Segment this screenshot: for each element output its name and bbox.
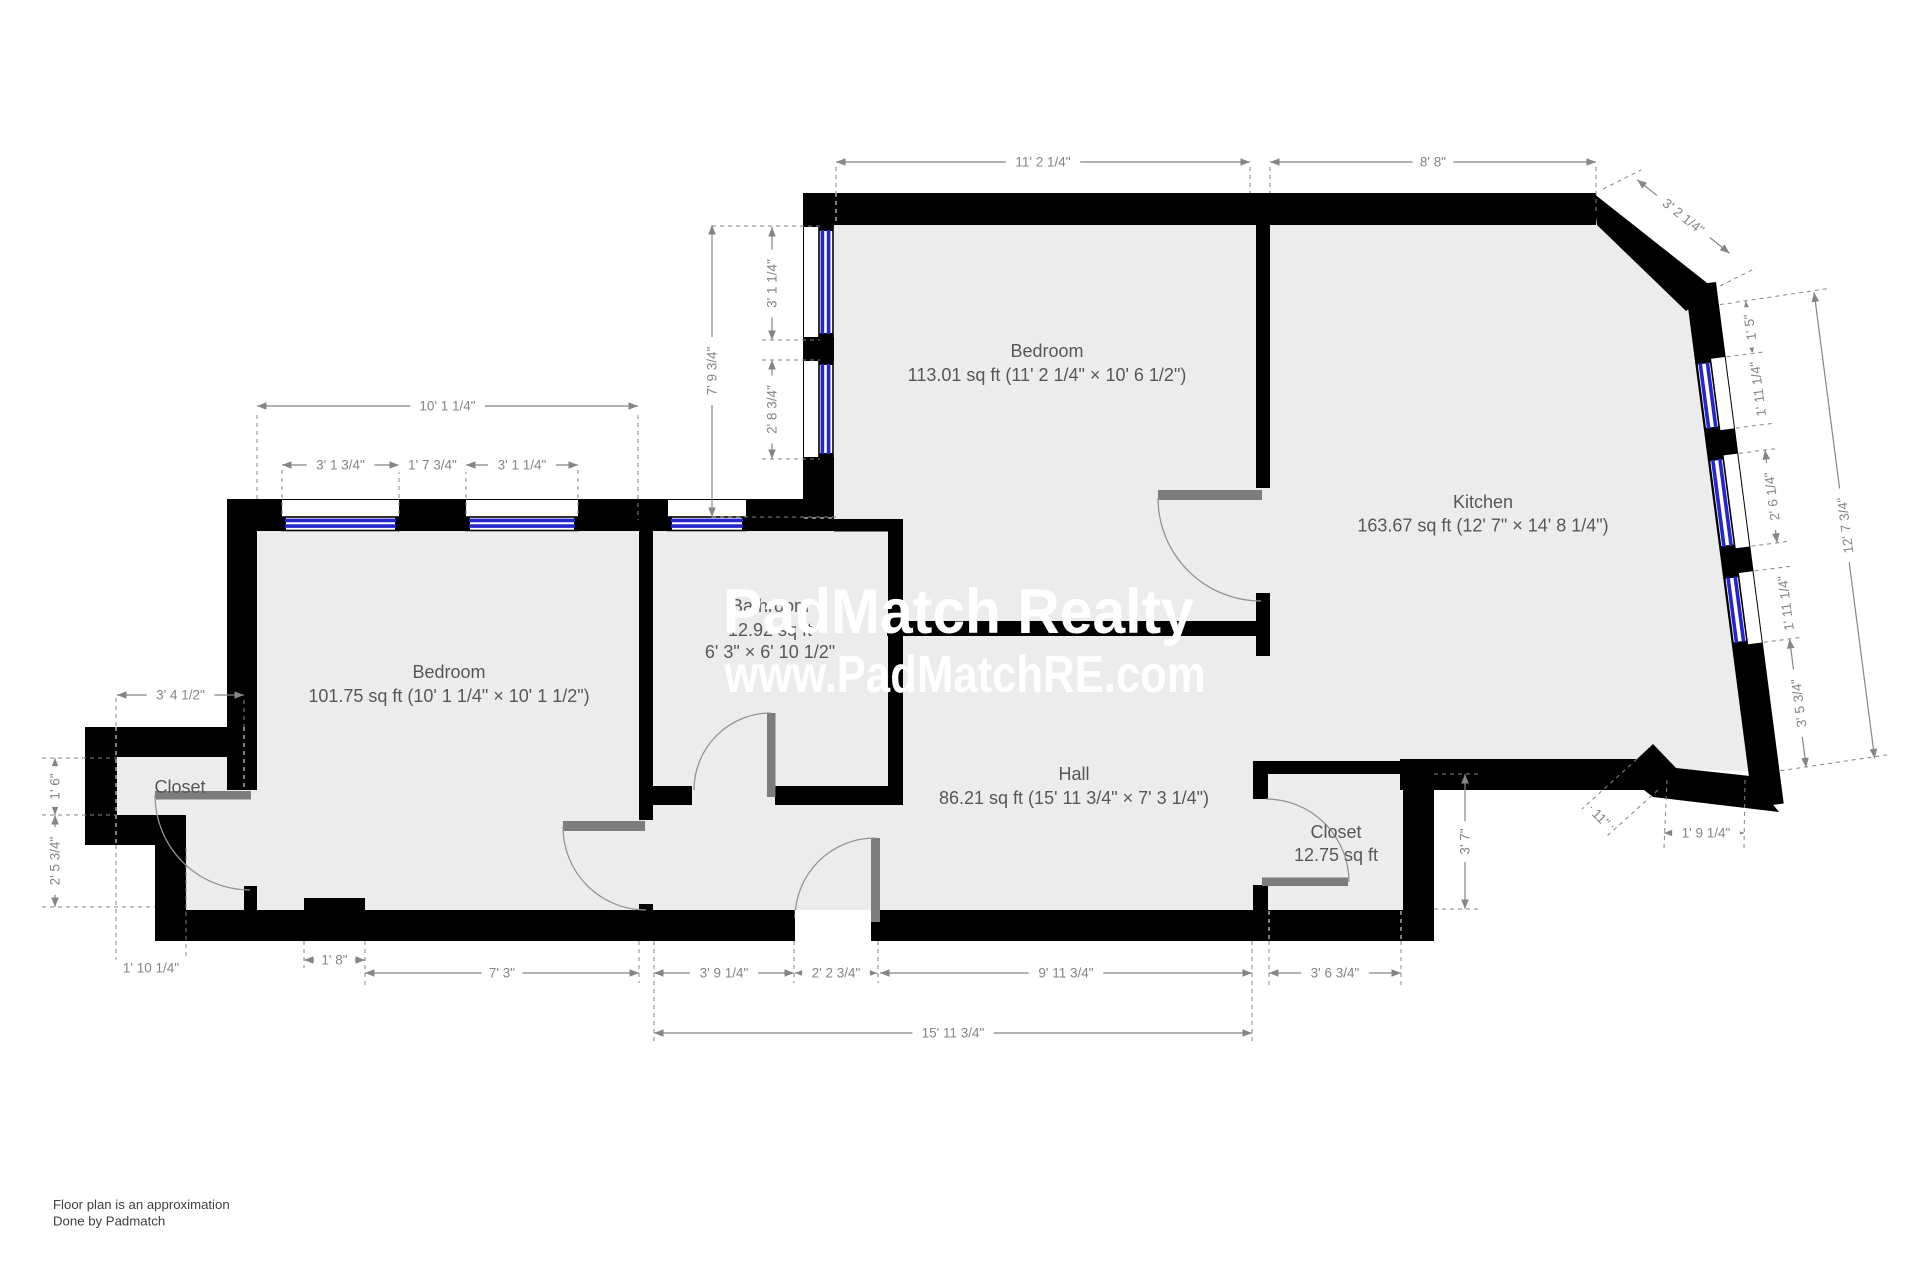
svg-text:3' 4 1/2": 3' 4 1/2": [156, 687, 205, 702]
svg-text:7' 9 3/4": 7' 9 3/4": [704, 346, 719, 395]
svg-text:101.75 sq ft (10' 1 1/4" × 10': 101.75 sq ft (10' 1 1/4" × 10' 1 1/2"): [308, 686, 589, 706]
svg-text:3' 9 1/4": 3' 9 1/4": [700, 965, 749, 980]
svg-text:www.PadMatchRE.com: www.PadMatchRE.com: [723, 647, 1205, 704]
svg-text:10' 1 1/4": 10' 1 1/4": [419, 398, 475, 413]
svg-text:8' 8": 8' 8": [1420, 154, 1446, 169]
svg-text:86.21 sq ft (15' 11 3/4" × 7': 86.21 sq ft (15' 11 3/4" × 7' 3 1/4"): [939, 788, 1209, 808]
svg-text:Done by Padmatch: Done by Padmatch: [53, 1214, 165, 1229]
svg-text:15' 11 3/4": 15' 11 3/4": [922, 1025, 985, 1040]
svg-text:163.67 sq ft (12' 7" × 14' 8 1: 163.67 sq ft (12' 7" × 14' 8 1/4"): [1357, 516, 1608, 536]
svg-text:1' 7 3/4": 1' 7 3/4": [408, 457, 457, 472]
svg-text:Hall: Hall: [1058, 764, 1089, 784]
svg-text:11' 2 1/4": 11' 2 1/4": [1015, 154, 1070, 169]
svg-text:Bedroom: Bedroom: [412, 662, 485, 682]
svg-text:3' 1 1/4": 3' 1 1/4": [764, 259, 779, 308]
svg-text:1' 6": 1' 6": [47, 773, 62, 799]
svg-text:Closet: Closet: [1310, 822, 1361, 842]
svg-text:Floor plan is an approximation: Floor plan is an approximation: [53, 1197, 230, 1212]
svg-text:2' 8 3/4": 2' 8 3/4": [764, 385, 779, 434]
svg-text:12.75 sq ft: 12.75 sq ft: [1294, 845, 1378, 865]
svg-text:113.01 sq ft (11' 2 1/4" × 10': 113.01 sq ft (11' 2 1/4" × 10' 6 1/2"): [908, 365, 1187, 385]
svg-text:PadMatch Realty: PadMatch Realty: [723, 576, 1194, 646]
svg-text:1' 10 1/4": 1' 10 1/4": [123, 960, 179, 975]
svg-text:1' 9 1/4": 1' 9 1/4": [1682, 825, 1731, 840]
svg-text:3' 1 3/4": 3' 1 3/4": [316, 457, 365, 472]
svg-text:Kitchen: Kitchen: [1453, 492, 1513, 512]
svg-text:2' 2 3/4": 2' 2 3/4": [812, 965, 861, 980]
svg-text:3' 7": 3' 7": [1457, 828, 1472, 854]
svg-text:3' 6 3/4": 3' 6 3/4": [1311, 965, 1360, 980]
svg-text:Closet: Closet: [154, 777, 205, 797]
svg-text:9' 11 3/4": 9' 11 3/4": [1038, 965, 1093, 980]
svg-text:Bedroom: Bedroom: [1010, 341, 1083, 361]
svg-text:7' 3": 7' 3": [489, 965, 515, 980]
svg-text:2' 5 3/4": 2' 5 3/4": [47, 836, 62, 885]
svg-text:3' 1 1/4": 3' 1 1/4": [498, 457, 547, 472]
svg-text:1' 8": 1' 8": [321, 952, 347, 967]
